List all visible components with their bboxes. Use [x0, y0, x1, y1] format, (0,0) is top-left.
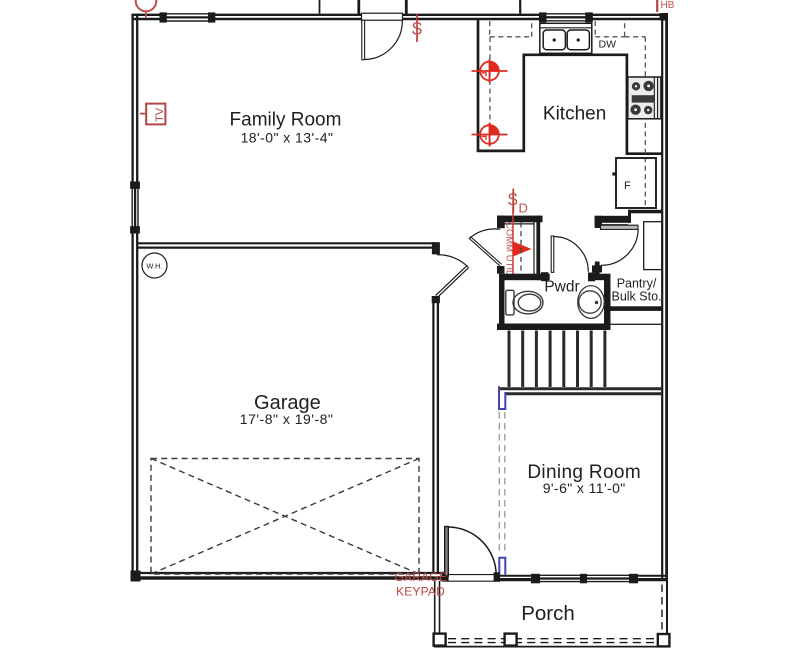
- svg-text:D: D: [519, 201, 528, 216]
- svg-text:18'-0" x 13'-4": 18'-0" x 13'-4": [241, 130, 334, 146]
- svg-text:$: $: [412, 19, 422, 39]
- svg-text:GARAGE: GARAGE: [395, 570, 448, 584]
- svg-text:Pantry/: Pantry/: [617, 277, 657, 291]
- svg-text:KEYPAD: KEYPAD: [396, 585, 445, 599]
- svg-text:TV: TV: [154, 107, 166, 122]
- svg-text:F: F: [624, 180, 631, 192]
- svg-text:Family Room: Family Room: [230, 110, 342, 131]
- svg-text:HB: HB: [661, 0, 675, 11]
- svg-text:W.H.: W.H.: [146, 262, 162, 271]
- svg-text:17'-8" x 19'-8": 17'-8" x 19'-8": [240, 411, 334, 427]
- svg-text:Pwdr: Pwdr: [544, 279, 579, 296]
- svg-text:9'-6" x 11'-0": 9'-6" x 11'-0": [543, 480, 626, 496]
- svg-text:Bulk Sto.: Bulk Sto.: [611, 290, 661, 304]
- svg-text:Porch: Porch: [521, 602, 575, 625]
- svg-text:$: $: [508, 190, 518, 210]
- svg-text:DW: DW: [599, 39, 617, 51]
- svg-text:Kitchen: Kitchen: [543, 103, 606, 124]
